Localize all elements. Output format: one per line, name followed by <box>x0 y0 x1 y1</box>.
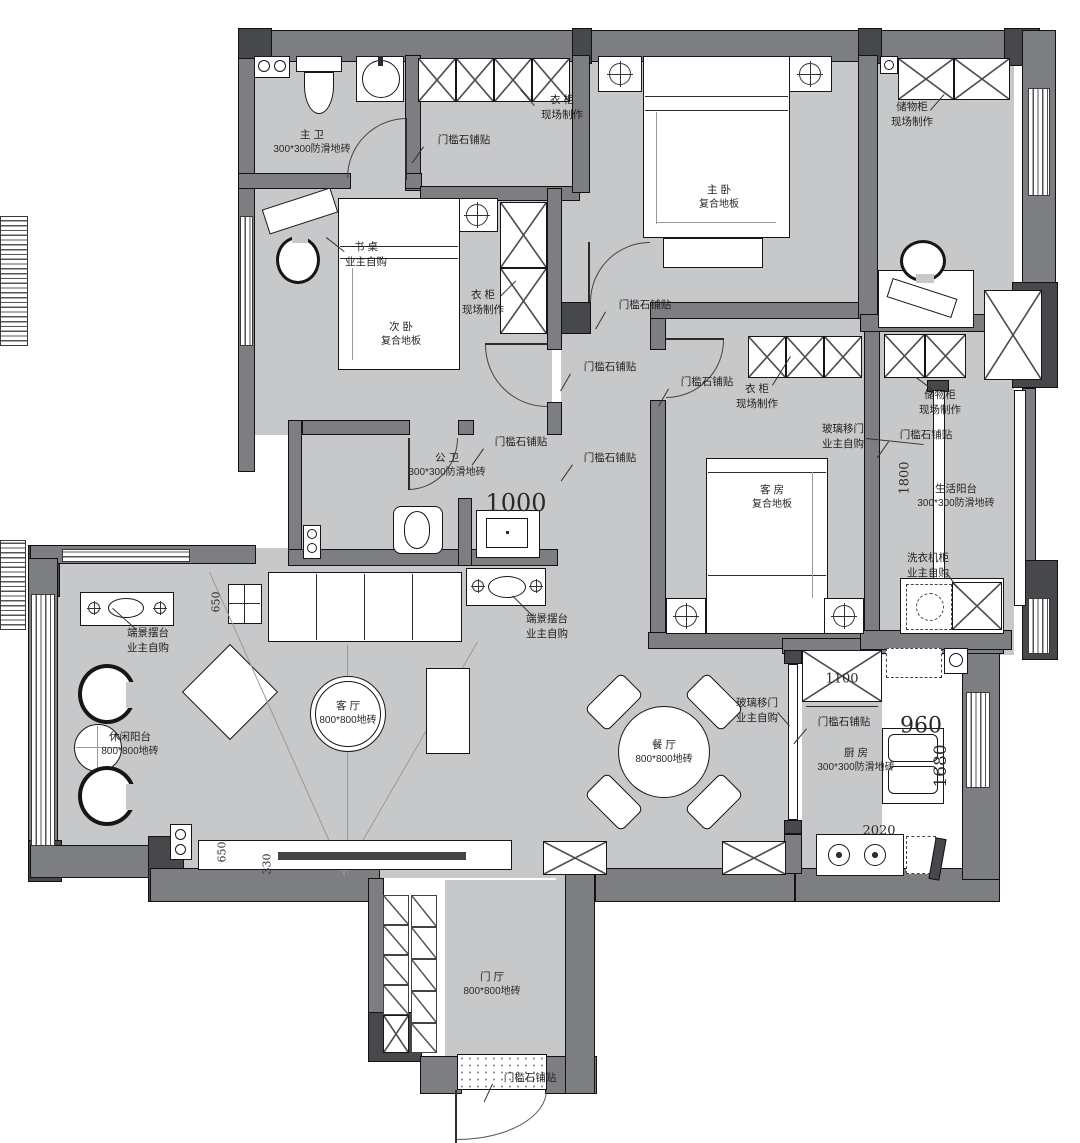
door-leaf <box>588 242 590 302</box>
shoe-cabinet-cell <box>383 985 409 1015</box>
room-name: 公 卫 <box>408 451 485 466</box>
shoe-cabinet-cell <box>383 955 409 985</box>
basin-icon <box>274 60 286 72</box>
dim-330: 330 <box>261 854 274 875</box>
window <box>1028 88 1050 196</box>
callout-wardrobe-top: 衣 柜 现场制作 <box>541 93 583 122</box>
lamp-icon <box>799 63 821 85</box>
callout-line: 衣 柜 <box>462 288 504 303</box>
elevator-shaft <box>984 290 1042 380</box>
callout-glass-door-kitchen: 玻璃移门 业主自购 <box>736 696 778 725</box>
balcony-glazing <box>1014 390 1026 606</box>
room-name: 主 卫 <box>273 128 350 143</box>
wall-secondbed-east <box>547 402 562 435</box>
callout-line: 业主自购 <box>345 255 387 270</box>
lamp-icon <box>675 605 697 627</box>
flower-icon <box>472 580 484 592</box>
callout-storage-right: 储物柜 现场制作 <box>919 388 961 417</box>
shelf-line <box>806 706 878 707</box>
room-finish: 复合地板 <box>752 498 792 512</box>
callout-threshold: 门槛石铺贴 <box>584 360 637 375</box>
storage-cell <box>898 58 954 100</box>
callout-line: 洗衣机柜 <box>907 551 949 566</box>
callout-line: 书 桌 <box>345 240 387 255</box>
callout-line: 储物柜 <box>891 100 933 115</box>
toilet-tank <box>296 56 342 72</box>
callout-console-left: 端景摆台 业主自购 <box>127 626 169 655</box>
wall-guestroom-west <box>650 318 666 350</box>
dim-650-cabinet: 650 <box>210 592 223 613</box>
bed-line <box>645 110 788 111</box>
lamp-icon <box>466 204 488 226</box>
shoe-cabinet-cell <box>383 1015 409 1053</box>
wall-masterbed-south <box>650 302 880 319</box>
window <box>31 594 55 846</box>
room-label-guest-room: 客 房 复合地板 <box>752 483 792 512</box>
room-finish: 300*300防滑地砖 <box>273 143 350 157</box>
corner-dial <box>949 653 963 667</box>
burner-dot <box>872 852 878 858</box>
sideboard-divider <box>412 574 413 640</box>
door-block <box>784 650 802 664</box>
room-name: 主 卧 <box>699 183 739 198</box>
drain-dot <box>506 531 509 534</box>
callout-line: 业主自购 <box>736 711 778 726</box>
washer-drum <box>916 593 944 621</box>
callout-line: 衣 柜 <box>541 93 583 108</box>
callout-line: 储物柜 <box>919 388 961 403</box>
wardrobe-cell <box>456 58 494 102</box>
shoe-cabinet-cell <box>383 895 409 925</box>
bed-fold <box>352 268 353 360</box>
exterior-sill <box>0 540 26 630</box>
callout-console-center: 端景摆台 业主自购 <box>526 612 568 641</box>
room-label-kitchen: 厨 房 300*300防滑地砖 <box>817 746 894 775</box>
entry-door-arc <box>457 1090 547 1140</box>
room-label-service-balcony: 生活阳台 300*300防滑地砖 <box>917 482 994 511</box>
callout-threshold: 门槛石铺贴 <box>584 451 637 466</box>
room-finish: 300*300防滑地砖 <box>408 466 485 480</box>
console-bowl <box>488 576 526 598</box>
faucet-icon <box>378 56 383 66</box>
sideboard-divider <box>316 574 317 640</box>
storage-cell <box>925 334 966 378</box>
room-finish: 800*800地砖 <box>635 753 692 767</box>
basin-icon <box>258 60 270 72</box>
wall-masterbath-south <box>238 173 351 189</box>
dim-2020: 2020 <box>862 824 895 839</box>
callout-wardrobe-guestroom: 衣 柜 现场制作 <box>736 382 778 411</box>
callout-line: 现场制作 <box>891 115 933 130</box>
floor-plan: 主 卫 300*300防滑地砖 主 卧 复合地板 次 卧 复合地板 公 卫 30… <box>0 0 1080 1143</box>
flower-icon <box>530 580 542 592</box>
window <box>240 216 253 346</box>
chair-gap <box>916 274 934 283</box>
low-window <box>722 841 786 875</box>
callout-line: 现场制作 <box>919 403 961 418</box>
wall-guestroom-west <box>650 400 666 642</box>
dim-650-tv: 650 <box>216 842 229 863</box>
callout-threshold: 门槛石铺贴 <box>681 375 734 390</box>
callout-wardrobe-secondbed: 衣 柜 现场制作 <box>462 288 504 317</box>
bed-line <box>708 575 826 576</box>
callout-threshold: 门槛石铺贴 <box>900 428 953 443</box>
dim-960: 960 <box>900 714 942 739</box>
room-name: 餐 厅 <box>635 738 692 753</box>
callout-threshold: 门槛石铺贴 <box>438 133 491 148</box>
wall-masterbed-east <box>858 55 878 319</box>
callout-threshold: 门槛石铺贴 <box>818 715 871 730</box>
entry-door-leaf <box>455 1090 457 1143</box>
wall-secondbed-east <box>547 188 562 350</box>
column <box>561 302 591 334</box>
callout-threshold: 门槛石铺贴 <box>619 298 672 313</box>
bed-line <box>645 96 788 97</box>
chair-gap <box>126 784 138 810</box>
door-block <box>784 820 802 834</box>
wardrobe-cell <box>786 336 824 378</box>
room-finish: 800*800地砖 <box>319 714 376 728</box>
callout-line: 业主自购 <box>127 641 169 656</box>
panel-dial <box>175 829 186 840</box>
callout-desk: 书 桌 业主自购 <box>345 240 387 269</box>
door-leaf <box>405 118 407 180</box>
room-label-living: 客 厅 800*800地砖 <box>319 699 376 728</box>
washer-cabinet <box>952 582 1002 630</box>
room-name: 门 厅 <box>463 970 520 985</box>
shoe-cabinet-cell <box>411 895 437 927</box>
room-finish: 800*800地砖 <box>101 745 158 759</box>
room-name: 客 房 <box>752 483 792 498</box>
room-name: 生活阳台 <box>917 482 994 497</box>
callout-glass-door-right: 玻璃移门 业主自购 <box>822 422 864 451</box>
dim-1800: 1800 <box>898 461 913 494</box>
callout-line: 现场制作 <box>462 303 504 318</box>
room-label-leisure-balcony: 休闲阳台 800*800地砖 <box>101 730 158 759</box>
wall-guestbath-north <box>302 420 410 435</box>
storage-knob <box>884 60 894 70</box>
callout-line: 业主自购 <box>907 566 949 581</box>
bed-fold <box>812 472 813 598</box>
window <box>62 549 190 562</box>
wall-guestroom-east <box>864 318 880 640</box>
flower-icon <box>154 602 166 614</box>
wall-foyer-east <box>565 868 595 1094</box>
shoe-cabinet-cell <box>411 927 437 959</box>
wardrobe-cell <box>500 268 547 334</box>
cabinet-line <box>244 585 245 623</box>
chair-gap <box>292 234 308 243</box>
room-label-guest-bath: 公 卫 300*300防滑地砖 <box>408 451 485 480</box>
wall-stub <box>458 420 474 435</box>
door-leaf <box>666 338 724 340</box>
wall-kitchen-west <box>784 834 802 874</box>
callout-line: 业主自购 <box>822 437 864 452</box>
desk-chair <box>276 236 320 284</box>
room-name: 次 卧 <box>381 320 421 335</box>
storage-cell <box>884 334 925 378</box>
wall-masterbed-west <box>572 55 590 193</box>
meter-dial <box>307 529 317 539</box>
dim-1100: 1100 <box>825 672 858 687</box>
shoe-cabinet-cell <box>411 1023 437 1053</box>
meter-dial <box>307 543 317 553</box>
wall-foyer-west <box>368 878 384 1020</box>
room-finish: 300*300防滑地砖 <box>917 497 994 511</box>
callout-washer: 洗衣机柜 业主自购 <box>907 551 949 580</box>
bed-bench <box>663 238 763 268</box>
wardrobe-cell <box>500 202 547 268</box>
shoe-cabinet-cell <box>383 925 409 955</box>
shoe-cabinet-cell <box>411 959 437 991</box>
squat-pan <box>404 511 430 549</box>
exterior-sill <box>0 216 28 346</box>
room-label-foyer: 门 厅 800*800地砖 <box>463 970 520 999</box>
table-line <box>97 726 98 770</box>
room-finish: 300*300防滑地砖 <box>817 761 894 775</box>
room-label-second-bed: 次 卧 复合地板 <box>381 320 421 349</box>
panel-dial <box>175 844 186 855</box>
room-name: 厨 房 <box>817 746 894 761</box>
room-finish: 800*800地砖 <box>463 985 520 999</box>
callout-threshold: 门槛石铺贴 <box>495 435 548 450</box>
coffee-table <box>426 668 470 754</box>
room-finish: 复合地板 <box>381 335 421 349</box>
storage-cell <box>954 58 1010 100</box>
dim-1680: 1680 <box>931 744 951 787</box>
burner-dot <box>836 852 842 858</box>
low-window <box>543 841 607 875</box>
sideboard-divider <box>364 574 365 640</box>
upper-cabinet <box>886 648 942 678</box>
door-leaf <box>485 343 547 345</box>
callout-line: 现场制作 <box>736 397 778 412</box>
bed-fold <box>656 222 776 223</box>
bed-line <box>708 472 826 473</box>
wall-foyer-bottom-left <box>420 1056 462 1094</box>
bed-fold <box>656 112 657 224</box>
wardrobe-cell <box>824 336 862 378</box>
room-label-master-bath: 主 卫 300*300防滑地砖 <box>273 128 350 157</box>
lamp-icon <box>833 605 855 627</box>
dim-1000: 1000 <box>485 489 546 517</box>
callout-threshold: 门槛石铺贴 <box>504 1071 557 1086</box>
shoe-cabinet-cell <box>411 991 437 1023</box>
wall-guestbath-divider <box>458 498 472 566</box>
wall-guestbath-west <box>288 420 302 566</box>
room-label-master-bed: 主 卧 复合地板 <box>699 183 739 212</box>
room-finish: 复合地板 <box>699 198 739 212</box>
callout-line: 业主自购 <box>526 627 568 642</box>
callout-line: 玻璃移门 <box>822 422 864 437</box>
tv <box>278 852 466 860</box>
callout-storage-top: 储物柜 现场制作 <box>891 100 933 129</box>
room-name: 客 厅 <box>319 699 376 714</box>
room-name: 休闲阳台 <box>101 730 158 745</box>
room-label-dining: 餐 厅 800*800地砖 <box>635 738 692 767</box>
wall-leisure-south <box>30 845 158 878</box>
window <box>1028 598 1050 654</box>
callout-line: 现场制作 <box>541 108 583 123</box>
flower-icon <box>88 602 100 614</box>
window <box>966 692 990 788</box>
wardrobe-cell <box>418 58 456 102</box>
chair-gap <box>126 682 138 708</box>
lamp-icon <box>609 63 631 85</box>
callout-line: 玻璃移门 <box>736 696 778 711</box>
